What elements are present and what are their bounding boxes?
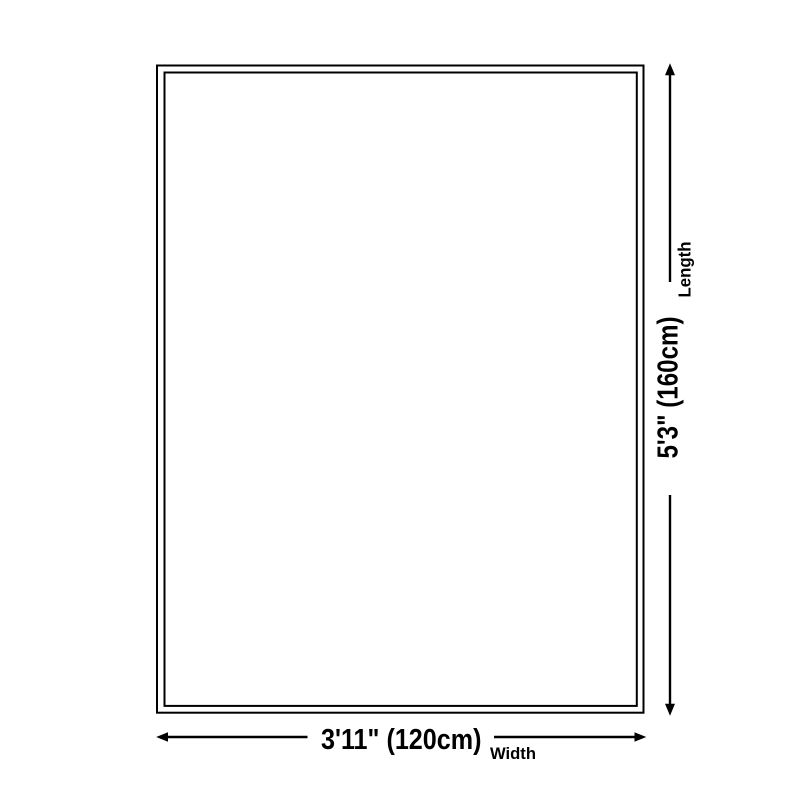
svg-text:Length: Length (675, 242, 695, 298)
svg-text:5'3" (160cm): 5'3" (160cm) (653, 317, 685, 459)
svg-text:Width: Width (490, 745, 536, 763)
svg-text:3'11" (120cm): 3'11" (120cm) (321, 724, 482, 756)
